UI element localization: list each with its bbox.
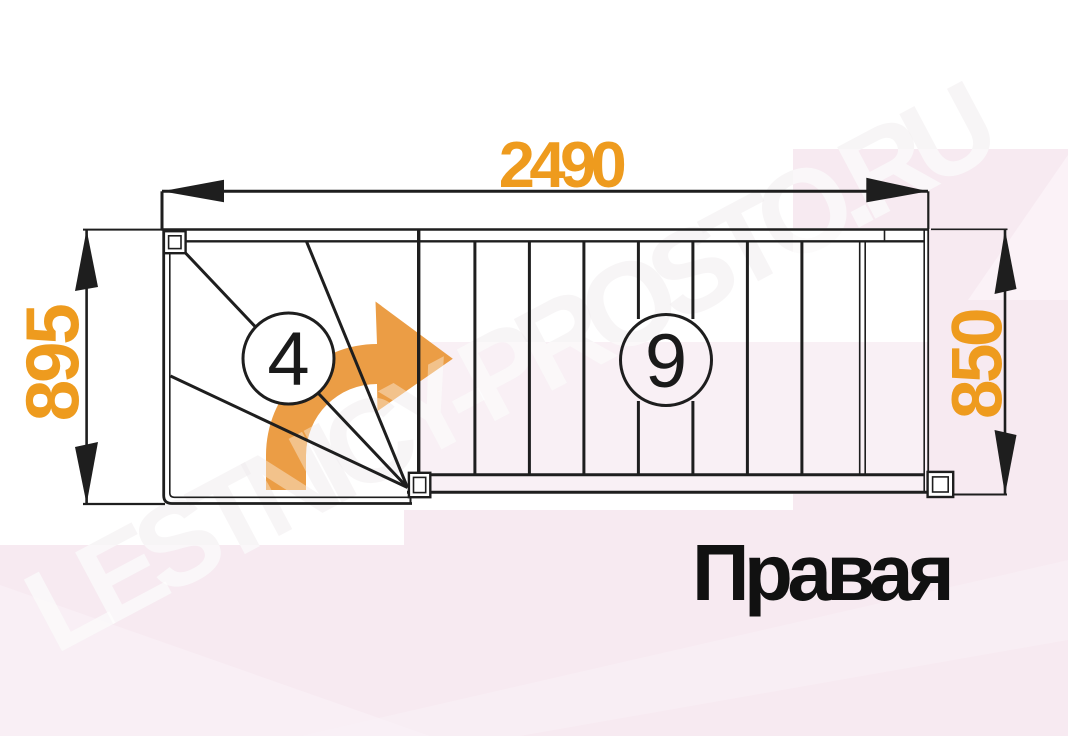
svg-text:Правая: Правая (692, 528, 950, 617)
svg-text:2490: 2490 (499, 128, 625, 201)
svg-text:850: 850 (939, 310, 1018, 419)
svg-text:9: 9 (645, 319, 687, 404)
svg-text:4: 4 (267, 317, 309, 402)
svg-text:895: 895 (11, 305, 95, 421)
